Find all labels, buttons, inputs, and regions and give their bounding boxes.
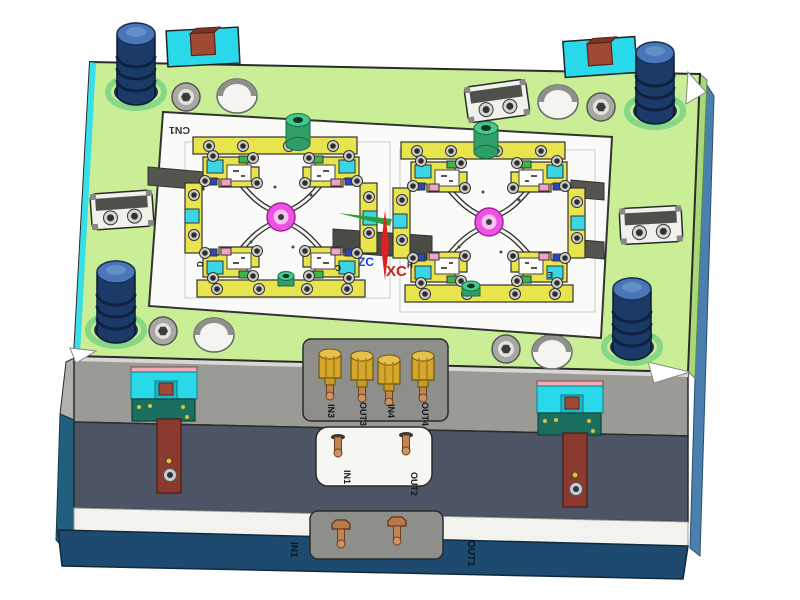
- port-out2-label: OUT2: [409, 472, 419, 496]
- hole-top-left: [217, 79, 257, 113]
- cad-viewport: IN1 OUT1: [0, 0, 800, 600]
- latch-lock-right[interactable]: [619, 205, 683, 244]
- locating-cylinder-3: [278, 272, 294, 287]
- plate-id-label: CN1: [169, 124, 190, 136]
- port-in1-label: IN1: [342, 470, 352, 484]
- pillar-top-right[interactable]: [627, 42, 683, 127]
- base-connector-bracket[interactable]: [310, 511, 443, 559]
- base-port-out1-label: OUT1: [465, 540, 476, 567]
- clamp-left[interactable]: [166, 26, 240, 67]
- port-out4-label: OUT4: [420, 402, 430, 426]
- clamp-right[interactable]: [563, 36, 637, 78]
- screw-top-right: [587, 93, 615, 121]
- cavity-mark-e: E: [547, 270, 553, 279]
- pillar-mid-left[interactable]: [88, 261, 144, 346]
- cavity-mark-c: C: [335, 263, 341, 272]
- hole-bottom-right: [532, 335, 572, 369]
- left-side-facet: [60, 358, 74, 420]
- locating-cylinder-2: [474, 122, 498, 159]
- cavity-mark-h: H: [407, 261, 413, 270]
- port-out3-label: OUT3: [358, 402, 368, 426]
- screw-bottom-right: [492, 335, 520, 363]
- port-in3-label: IN3: [326, 404, 336, 418]
- screw-bottom-left: [149, 317, 177, 345]
- cavity-mark-d: D: [196, 261, 205, 267]
- pillar-top-left[interactable]: [108, 23, 164, 108]
- pillar-mid-right[interactable]: [604, 278, 660, 363]
- locating-cylinder-4: [462, 281, 480, 296]
- screw-top-left: [172, 83, 200, 111]
- base-port-in1-label: IN1: [288, 542, 299, 558]
- wcs-x-label: XC: [386, 263, 407, 280]
- latch-lock-left[interactable]: [90, 190, 154, 230]
- locating-cylinder-1: [286, 114, 310, 151]
- cooling-manifold[interactable]: IN3 OUT3 IN4 OUT4: [303, 339, 448, 426]
- hole-top-right: [538, 85, 578, 119]
- mold-assembly-render: IN1 OUT1: [0, 0, 800, 600]
- wcs-z-label: ZC: [358, 255, 374, 269]
- hole-bottom-left: [194, 318, 234, 352]
- latch-lock-back[interactable]: [464, 79, 530, 123]
- port-in4-label: IN4: [386, 404, 396, 418]
